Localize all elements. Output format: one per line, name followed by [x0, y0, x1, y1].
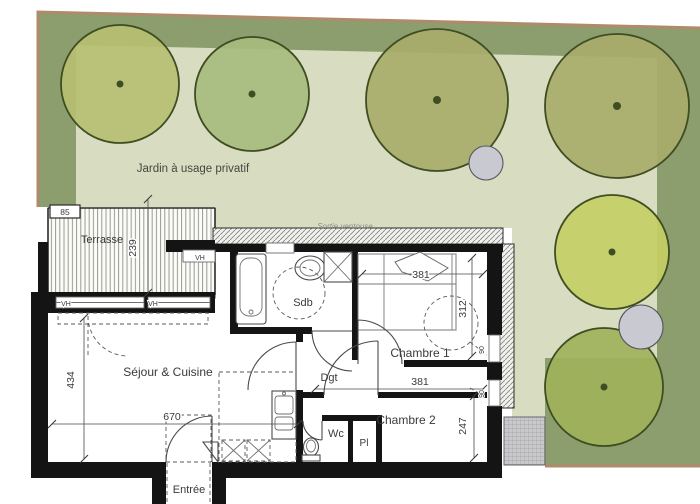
room-label-sejour: Séjour & Cuisine — [123, 365, 213, 379]
wall — [152, 462, 166, 504]
entry-floor — [166, 462, 212, 504]
dim-chambre1-width: 381 — [412, 269, 430, 281]
wall — [348, 421, 353, 462]
dim-chambre1-depth: 312 — [457, 300, 469, 318]
paved-area — [504, 417, 545, 465]
wall — [296, 332, 303, 342]
kitchen-sink-unit — [272, 391, 296, 439]
tree-trunk — [117, 81, 124, 88]
shrub-circle — [619, 305, 663, 349]
tree-trunk — [601, 384, 608, 391]
tree-trunk — [433, 96, 441, 104]
wall — [31, 292, 48, 478]
toilet-tank — [302, 455, 320, 461]
wall — [487, 362, 502, 380]
wall — [487, 406, 502, 462]
dim-window-ch2: 90 — [479, 390, 486, 398]
vent-window — [266, 243, 294, 253]
room-label-wc: Wc — [328, 428, 344, 440]
room-label-pl: Pl — [360, 438, 369, 449]
dim-sejour-height: 434 — [65, 371, 77, 389]
room-label-chambre2: Chambre 2 — [376, 413, 436, 427]
wall — [378, 392, 487, 398]
room-label-dgt: Dgt — [320, 372, 337, 384]
dim-sejour-width: 670 — [163, 411, 181, 423]
window-tag-vh: VH — [61, 301, 71, 308]
wall — [487, 248, 502, 335]
window-tag-vh: VH — [148, 301, 158, 308]
terrace-box-label: 85 — [60, 207, 70, 217]
wall — [296, 390, 303, 462]
wall — [226, 462, 502, 478]
wall — [376, 421, 382, 462]
wall — [303, 392, 324, 398]
dim-terrasse-depth: 239 — [127, 239, 139, 257]
dim-chambre2-depth: 247 — [457, 417, 469, 435]
wall — [322, 415, 382, 421]
room-label-terrasse: Terrasse — [81, 234, 123, 246]
tree-trunk — [613, 102, 621, 110]
garden-label: Jardin à usage privatif — [137, 163, 250, 175]
window-tag-vh: VH — [195, 255, 205, 262]
tree-trunk — [609, 249, 616, 256]
dim-chambre2-width: 381 — [411, 376, 429, 388]
room-label-sdb: Sdb — [293, 297, 313, 309]
wall — [38, 242, 48, 295]
apartment: 85 — [31, 195, 545, 504]
room-label-entree: Entrée — [173, 484, 205, 496]
toilet-bowl — [304, 438, 319, 456]
vent-label: Sortie ventouse — [317, 222, 373, 231]
room-label-chambre1: Chambre 1 — [390, 346, 450, 360]
wall — [352, 250, 358, 360]
wc-fixtures — [302, 438, 320, 461]
floor-plan-image: Jardin à usage privatif 85 — [0, 0, 700, 504]
shrub-circle — [469, 146, 503, 180]
bedroom1-window — [489, 335, 500, 362]
dim-window-ch1: 90 — [479, 346, 486, 354]
wall — [404, 360, 487, 367]
bedroom2-window — [489, 380, 500, 406]
tree-trunk — [249, 91, 256, 98]
wall — [212, 462, 226, 504]
floor-plan-page: Jardin à usage privatif 85 — [0, 0, 700, 504]
wall — [31, 462, 152, 478]
